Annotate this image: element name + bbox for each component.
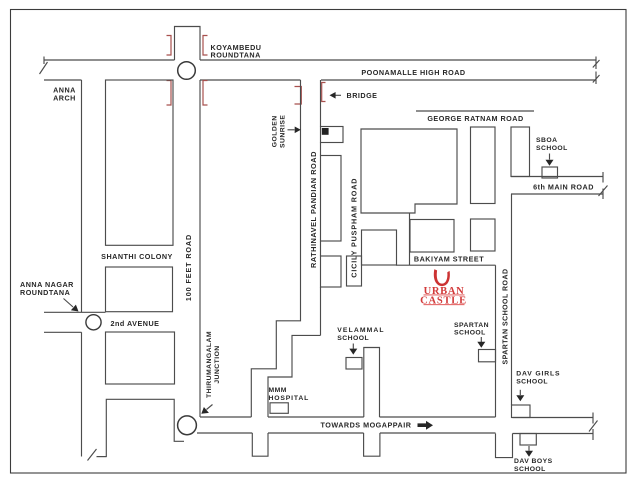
svg-text:SCHOOL: SCHOOL	[454, 330, 486, 337]
svg-text:SBOA: SBOA	[536, 137, 557, 144]
svg-text:CICILY PUSPHAM ROAD: CICILY PUSPHAM ROAD	[350, 178, 359, 278]
svg-text:THIRUMANGALAM: THIRUMANGALAM	[206, 331, 213, 398]
svg-text:SCHOOL: SCHOOL	[536, 145, 568, 152]
svg-text:POONAMALLE HIGH ROAD: POONAMALLE HIGH ROAD	[361, 68, 465, 77]
svg-text:DAV BOYS: DAV BOYS	[514, 458, 553, 465]
svg-text:SCHOOL: SCHOOL	[337, 335, 369, 342]
svg-text:JUNCTION: JUNCTION	[214, 345, 221, 383]
svg-text:TOWARDS MOGAPPAIR: TOWARDS MOGAPPAIR	[321, 421, 412, 430]
svg-text:SPARTAN: SPARTAN	[454, 322, 489, 329]
svg-text:DAV GIRLS: DAV GIRLS	[516, 371, 560, 378]
svg-text:HOSPITAL: HOSPITAL	[269, 395, 310, 402]
svg-text:ARCH: ARCH	[53, 93, 76, 102]
svg-text:SCHOOL: SCHOOL	[516, 379, 548, 386]
svg-text:SHANTHI COLONY: SHANTHI COLONY	[101, 252, 173, 261]
svg-text:ROUNDTANA: ROUNDTANA	[20, 288, 70, 297]
svg-text:GEORGE RATNAM ROAD: GEORGE RATNAM ROAD	[427, 114, 523, 123]
svg-text:6th MAIN ROAD: 6th MAIN ROAD	[533, 182, 594, 191]
svg-text:BAKIYAM STREET: BAKIYAM STREET	[414, 254, 484, 263]
svg-text:100 FEET ROAD: 100 FEET ROAD	[184, 234, 193, 301]
svg-text:SCHOOL: SCHOOL	[514, 466, 546, 473]
svg-text:VELAMMAL: VELAMMAL	[337, 327, 384, 334]
svg-text:2nd AVENUE: 2nd AVENUE	[111, 319, 160, 328]
svg-text:SPARTAN SCHOOL ROAD: SPARTAN SCHOOL ROAD	[501, 269, 510, 365]
svg-text:ROUNDTANA: ROUNDTANA	[211, 51, 261, 60]
svg-text:SUNRISE: SUNRISE	[279, 115, 286, 148]
svg-text:RATHINAVEL PANDIAN ROAD: RATHINAVEL PANDIAN ROAD	[309, 151, 318, 268]
svg-text:BRIDGE: BRIDGE	[347, 91, 378, 100]
svg-text:GOLDEN: GOLDEN	[271, 115, 278, 147]
svg-text:MMM: MMM	[269, 387, 287, 394]
